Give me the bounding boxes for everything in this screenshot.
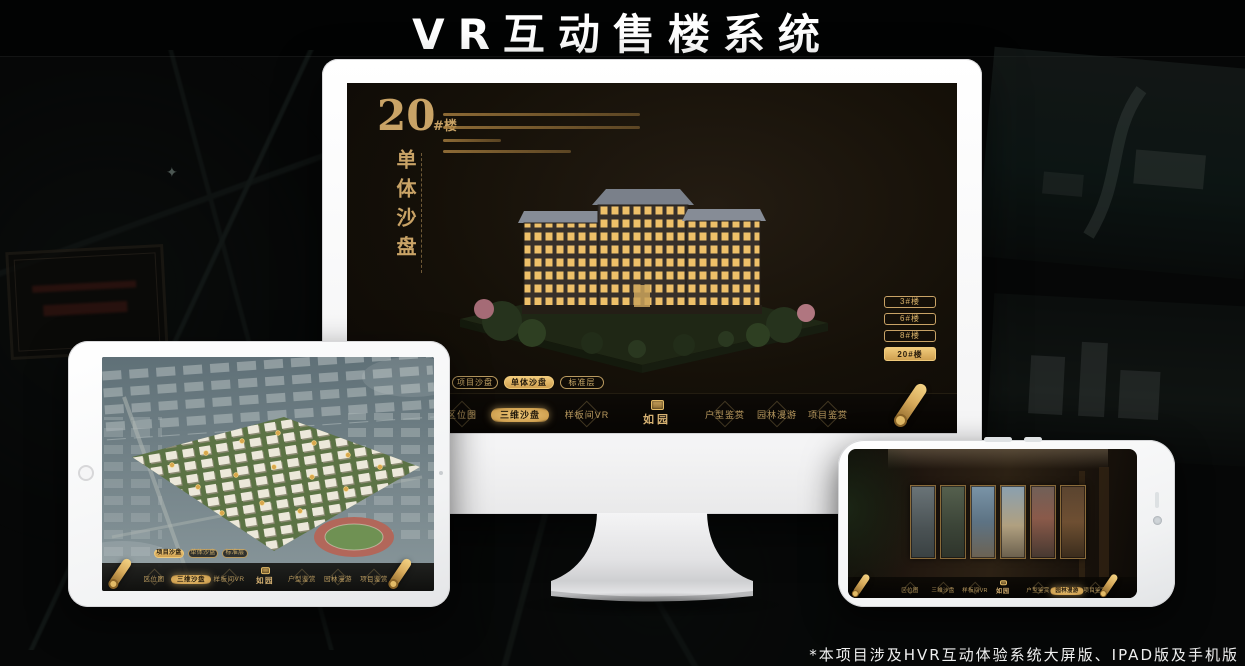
- seal-stamp-icon: [999, 580, 1006, 585]
- pano-card[interactable]: [1000, 485, 1026, 559]
- tablet-subtab-project-sandtable[interactable]: 项目沙盘: [154, 549, 184, 558]
- tablet-nav-item-3d-sandtable[interactable]: 三维沙盘: [171, 568, 211, 586]
- scroll-menu-icon[interactable]: [852, 573, 871, 596]
- interior-foliage: [848, 449, 918, 598]
- phone-nav-item-garden-roam[interactable]: 园林漫游: [1050, 579, 1083, 597]
- tablet-camera-icon: [439, 471, 443, 475]
- phone-nav-item-showroom-vr[interactable]: 样板间VR: [962, 579, 988, 597]
- subtab-project-sandtable[interactable]: 项目沙盘: [452, 376, 498, 389]
- nav-item-floorplans[interactable]: 户型鉴赏: [705, 405, 745, 423]
- phone-volume-button: [984, 437, 1012, 442]
- map-compass-icon: ✦: [166, 164, 178, 181]
- description-line: [443, 113, 640, 116]
- subtab-single-sandtable[interactable]: 单体沙盘: [504, 376, 554, 389]
- interior-ceiling: [888, 449, 1108, 469]
- description-line: [443, 139, 501, 142]
- stadium: [314, 517, 394, 557]
- background-aerial-screenshot: [976, 47, 1245, 280]
- tablet-subtab-single-sandtable[interactable]: 单体沙盘: [188, 549, 218, 558]
- phone-speaker-icon: [1155, 492, 1159, 508]
- pano-card[interactable]: [910, 485, 936, 559]
- tablet-screen: 项目沙盘 单体沙盘 标准层 区位图 三维沙盘 样板间VR 如园: [102, 357, 434, 591]
- tablet-home-button[interactable]: [78, 465, 94, 481]
- tablet-nav-item-showroom-vr[interactable]: 样板间VR: [213, 568, 244, 586]
- phone-nav-item-floorplans[interactable]: 户型鉴赏: [1026, 579, 1049, 597]
- building-button-20[interactable]: 20#楼: [884, 347, 936, 361]
- phone-mockup: 区位图 三维沙盘 样板间VR 如园 户型鉴赏 园林漫游: [838, 440, 1175, 607]
- phone-screen: 区位图 三维沙盘 样板间VR 如园 户型鉴赏 园林漫游: [848, 449, 1137, 598]
- nav-item-project-gallery[interactable]: 项目鉴赏: [808, 405, 848, 423]
- building-headline-vertical: 单体沙盘: [391, 149, 420, 265]
- building-model[interactable]: [432, 143, 852, 373]
- tablet-nav-item-garden-roam[interactable]: 园林漫游: [324, 568, 352, 586]
- tablet-mockup: 项目沙盘 单体沙盘 标准层 区位图 三维沙盘 样板间VR 如园: [68, 341, 450, 607]
- nav-item-location[interactable]: 区位图: [447, 405, 477, 423]
- nav-item-garden-roam[interactable]: 园林漫游: [757, 405, 797, 423]
- building-button-8[interactable]: 8#楼: [884, 330, 936, 342]
- headline-divider: [421, 153, 422, 273]
- page-title: VR互动售楼系统: [0, 1, 1245, 62]
- building-headline-unit: #楼: [433, 115, 457, 134]
- nav-item-3d-sandtable[interactable]: 三维沙盘: [491, 405, 549, 423]
- brand-logo[interactable]: 如园: [643, 399, 671, 426]
- phone-nav-item-3d-sandtable[interactable]: 三维沙盘: [931, 579, 954, 597]
- seal-stamp-icon: [261, 567, 270, 574]
- seal-stamp-icon: [651, 399, 664, 409]
- building-headline-number: 20: [377, 95, 435, 137]
- phone-navbar: 区位图 三维沙盘 样板间VR 如园 户型鉴赏 园林漫游: [848, 577, 1137, 598]
- phone-brand-logo[interactable]: 如园: [996, 580, 1010, 595]
- tablet-navbar: 区位图 三维沙盘 样板间VR 如园 户型鉴赏 园林漫游: [102, 563, 434, 591]
- tablet-nav-item-location[interactable]: 区位图: [144, 568, 165, 586]
- phone-power-button: [1024, 437, 1042, 442]
- stand-shadow: [500, 592, 800, 618]
- subtab-standard-floor[interactable]: 标准层: [560, 376, 604, 389]
- phone-nav-item-location[interactable]: 区位图: [901, 579, 918, 597]
- pano-card[interactable]: [1060, 485, 1086, 559]
- phone-camera-icon: [1153, 516, 1162, 525]
- pano-card[interactable]: [970, 485, 996, 559]
- description-line: [443, 126, 640, 129]
- building-button-6[interactable]: 6#楼: [884, 313, 936, 325]
- tablet-brand-logo[interactable]: 如园: [256, 567, 274, 586]
- pano-card[interactable]: [940, 485, 966, 559]
- interior-door-frame: [1099, 467, 1109, 587]
- poster: ✦ VR互动售楼系统 20 #楼 单体沙盘: [0, 0, 1245, 666]
- tablet-nav-item-floorplans[interactable]: 户型鉴赏: [288, 568, 316, 586]
- pano-card[interactable]: [1030, 485, 1056, 559]
- nav-item-showroom-vr[interactable]: 样板间VR: [565, 405, 610, 423]
- tablet-nav-item-project-gallery[interactable]: 项目鉴赏: [360, 568, 388, 586]
- tablet-subtab-standard-floor[interactable]: 标准层: [222, 549, 248, 558]
- footnote: *本项目涉及HVR互动体验系统大屏版、IPAD版及手机版: [809, 644, 1239, 665]
- building-button-3[interactable]: 3#楼: [884, 296, 936, 308]
- masterplan-image[interactable]: [102, 357, 434, 591]
- scroll-menu-icon[interactable]: [893, 382, 929, 427]
